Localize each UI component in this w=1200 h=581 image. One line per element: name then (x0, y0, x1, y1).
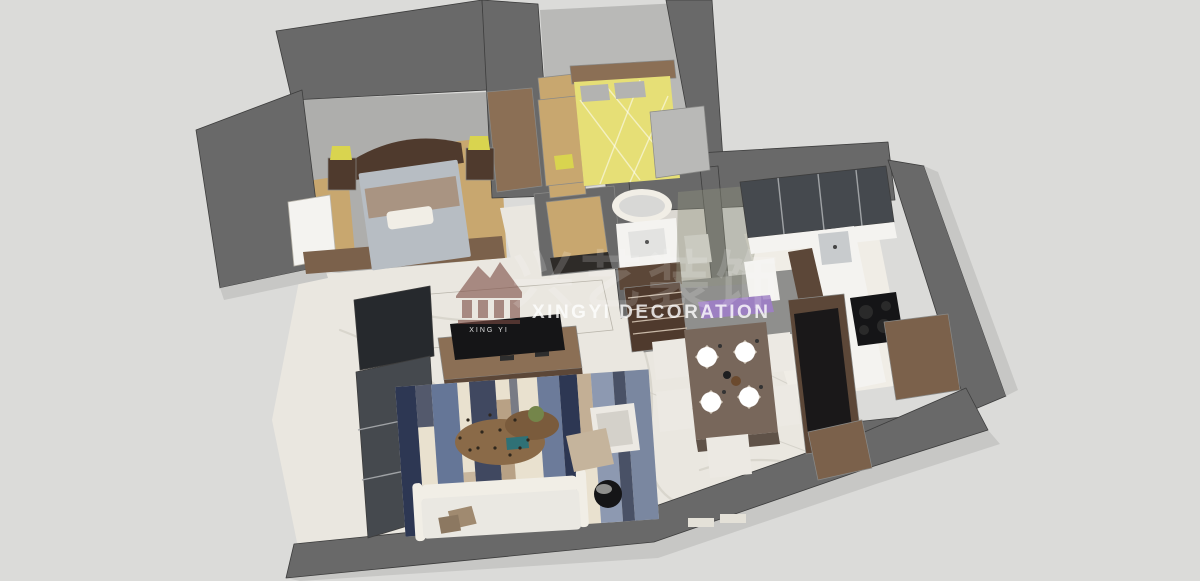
nightstand-left (328, 158, 356, 190)
logo-column (478, 300, 488, 318)
pillow (614, 81, 646, 99)
plate (735, 342, 755, 362)
fruit-bowl (731, 376, 741, 386)
cup (718, 344, 722, 348)
dining-chair (656, 388, 694, 432)
leaning-panel (650, 106, 710, 178)
cup (755, 339, 759, 343)
master-bed (351, 133, 477, 272)
master-wardrobe (487, 88, 542, 192)
nightstand-right (466, 148, 494, 180)
apartment-3d-view[interactable]: XING YI 兴艺装饰 XINGYI DECORATION (0, 0, 1200, 581)
teal-tray (506, 436, 529, 450)
logo-column (462, 300, 472, 318)
logo-base (458, 320, 520, 324)
desk-chair-seat (554, 154, 574, 170)
logo-column (494, 300, 504, 318)
dining-chair (652, 338, 690, 380)
burner (859, 325, 869, 335)
island-cabinet (884, 314, 960, 400)
stand-handle (500, 355, 514, 361)
rug-stripe (415, 385, 434, 428)
sink-drain (645, 240, 649, 244)
floor-lamp-shade (596, 484, 612, 494)
cup (722, 390, 726, 394)
bedside-lamp-left (330, 146, 352, 160)
round-tub-inner (619, 195, 665, 217)
floor-vent (688, 518, 714, 527)
pillow (580, 84, 610, 102)
burner (859, 305, 873, 319)
plate (697, 347, 717, 367)
bedside-lamp-right (468, 136, 490, 150)
watermark-brand-text: XINGYI DECORATION (532, 302, 771, 323)
ottoman (566, 428, 614, 472)
plate (701, 392, 721, 412)
logo-subtitle: XING YI (469, 327, 509, 334)
floor-lamp (594, 480, 622, 508)
plate (739, 387, 759, 407)
wine-bottle (723, 371, 731, 379)
throw-pillow (438, 515, 461, 534)
potted-plant (528, 406, 544, 422)
cup (759, 385, 763, 389)
sketchup-render-viewport[interactable]: XING YI 兴艺装饰 XINGYI DECORATION (0, 0, 1200, 581)
sink-drain (833, 245, 837, 249)
floor-vent (720, 514, 746, 523)
dining-chair (706, 434, 752, 478)
burner (881, 301, 891, 311)
